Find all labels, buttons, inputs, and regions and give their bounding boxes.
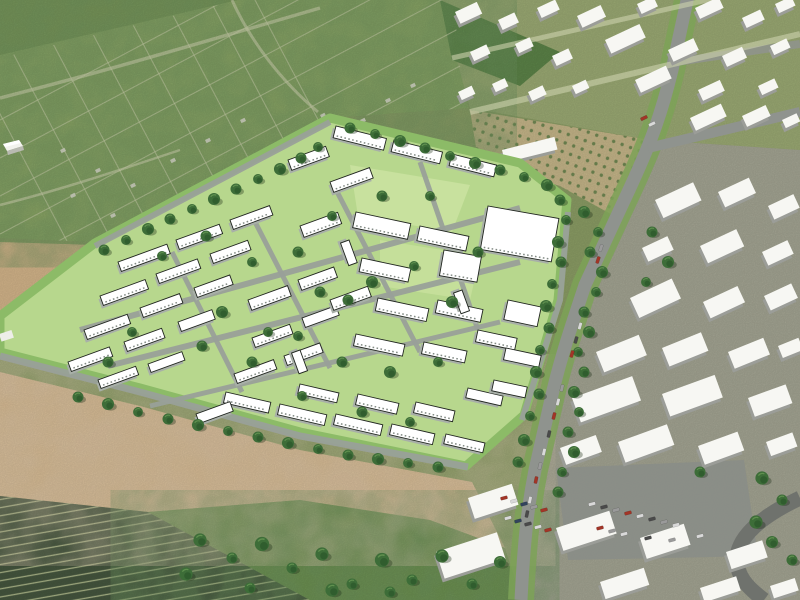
aerial-3d-view: [0, 0, 800, 600]
scene-canvas: [0, 0, 800, 600]
